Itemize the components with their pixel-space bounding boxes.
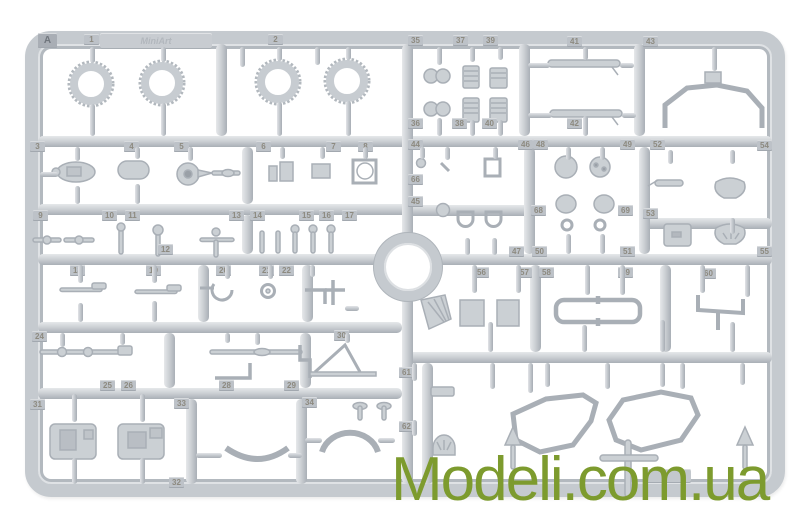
sprue-pin — [140, 458, 145, 484]
part-number-tag-11: 11 — [125, 210, 140, 221]
part-number-tag-29: 29 — [284, 380, 299, 391]
part-number-tag-36: 36 — [408, 118, 423, 129]
part-number-tag-1: 1 — [84, 34, 99, 45]
sprue-stub — [196, 453, 222, 458]
sprue-pin — [420, 147, 425, 159]
part-number-tag-10: 10 — [102, 210, 117, 221]
part-number-tag-42: 42 — [567, 118, 582, 129]
sprue-pin — [255, 333, 260, 345]
sprue-pin — [545, 363, 550, 387]
sprue-pin — [345, 333, 350, 343]
part-number-tag-49: 49 — [620, 139, 635, 150]
part-number-tag-12: 12 — [158, 244, 173, 255]
sprue-pin — [600, 147, 605, 160]
sprue-stub — [288, 453, 302, 458]
sprue-pin — [320, 147, 325, 159]
part-number-tag-7: 7 — [326, 141, 341, 152]
sprue-pin — [528, 363, 533, 393]
sprue-pin — [152, 265, 157, 283]
part-number-tag-51: 51 — [620, 246, 635, 257]
sprue-pin — [268, 265, 273, 279]
sprue-stub — [620, 63, 634, 68]
part-number-tag-A: A — [38, 33, 57, 48]
sprue-pin — [660, 363, 665, 387]
part-number-tag-69: 69 — [618, 205, 633, 216]
sprue-stub — [528, 63, 550, 68]
sprue-pin — [437, 47, 442, 65]
sprue-stub — [345, 306, 359, 311]
sprue-pin — [280, 147, 285, 159]
sprue-pin — [712, 47, 717, 71]
sprue-pin — [60, 333, 65, 347]
sprue-pin — [346, 101, 351, 136]
part-number-tag-13: 13 — [229, 210, 244, 221]
sprue-pin — [668, 150, 673, 164]
part-number-tag-26: 26 — [121, 380, 136, 391]
sprue-pin — [490, 363, 495, 389]
part-number-tag-55: 55 — [757, 246, 772, 257]
part-number-tag-6: 6 — [256, 141, 271, 152]
sprue-stub — [305, 438, 322, 443]
sprue-pin — [310, 265, 315, 277]
sprue-pin — [465, 238, 470, 255]
part-number-tag-33: 33 — [174, 398, 189, 409]
sprue-pin — [161, 103, 166, 136]
sprue-stub — [622, 113, 636, 118]
sprue-pin — [161, 47, 166, 62]
part-number-tag-16: 16 — [319, 210, 334, 221]
sprue-pin — [600, 234, 605, 254]
sprue-pin — [363, 147, 368, 159]
sprue-pin — [605, 363, 610, 389]
sprue-pin — [412, 420, 417, 436]
part-number-tag-24: 24 — [32, 331, 47, 342]
sprue-pin — [315, 47, 320, 65]
sprue-pin — [470, 47, 475, 62]
sprue-pin — [470, 120, 475, 136]
sprue-pin — [472, 265, 477, 293]
sprue-pin — [745, 265, 750, 297]
part-number-tag-50: 50 — [532, 246, 547, 257]
sprue-pin — [135, 147, 140, 159]
part-number-tag-9: 9 — [33, 210, 48, 221]
sprue-pin — [493, 147, 498, 159]
sprue-pin — [225, 265, 230, 279]
part-number-tag-22: 22 — [279, 265, 294, 276]
sprue-pin — [78, 303, 83, 322]
part-number-tag-31: 31 — [30, 399, 45, 410]
sprue-pin — [492, 238, 497, 255]
sprue-pin — [277, 47, 282, 61]
part-number-tag-34: 34 — [302, 397, 317, 408]
sprue-pin — [620, 265, 625, 295]
part-number-tag-32: 32 — [169, 477, 184, 488]
part-number-tag-53: 53 — [643, 208, 658, 219]
sprue-pin — [120, 333, 125, 345]
part-number-tag-15: 15 — [299, 210, 314, 221]
sprue-stub — [40, 172, 58, 177]
sprue-pin — [412, 363, 417, 381]
sprue-pin — [72, 394, 77, 422]
part-number-tag-54: 54 — [757, 140, 772, 151]
part-number-tag-48: 48 — [533, 139, 548, 150]
sprue-pin — [566, 147, 571, 160]
part-number-tag-5: 5 — [174, 141, 189, 152]
part-number-tag-43: 43 — [643, 36, 658, 47]
sprue-stub — [528, 113, 552, 118]
part-number-tag-47: 47 — [509, 246, 524, 257]
sprue-pin — [488, 322, 493, 352]
part-number-tag-68: 68 — [531, 205, 546, 216]
watermark-text: Modeli.com.ua — [391, 444, 768, 515]
sprue-stub — [378, 438, 395, 443]
sprue-pin — [730, 218, 735, 234]
sprue-pin — [135, 184, 140, 204]
part-number-tag-37: 37 — [453, 35, 468, 46]
sprue-pin — [730, 322, 735, 352]
sprue-pin — [445, 147, 450, 160]
sprue-pin — [660, 320, 665, 352]
sprue-pin — [498, 120, 503, 136]
sprue-pin — [498, 47, 503, 60]
part-number-tag-40: 40 — [482, 118, 497, 129]
sprue-pin — [437, 118, 442, 136]
part-number-tag-35: 35 — [408, 35, 423, 46]
part-number-tag-46: 46 — [518, 139, 533, 150]
sprue-pin — [582, 325, 587, 352]
sprue-pin — [140, 394, 145, 422]
sprue-pin — [740, 363, 745, 385]
part-number-tag-17: 17 — [342, 210, 357, 221]
sprue-pin — [680, 363, 685, 389]
sprue-pin — [346, 47, 351, 60]
product-photo-model-sprue: MiniArt — [0, 0, 800, 523]
part-number-tag-39: 39 — [483, 35, 498, 46]
sprue-pin — [188, 147, 193, 161]
sprue-pin — [585, 265, 590, 295]
part-number-tag-52: 52 — [650, 139, 665, 150]
part-number-tag-41: 41 — [567, 36, 582, 47]
sprue-pin — [90, 47, 95, 63]
part-number-tag-3: 3 — [30, 141, 45, 152]
sprue-pin — [90, 104, 95, 136]
part-number-tag-14: 14 — [250, 210, 265, 221]
part-number-tag-66: 66 — [408, 174, 423, 185]
part-number-tag-38: 38 — [452, 118, 467, 129]
sprue-pin — [75, 186, 80, 204]
part-number-tag-2: 2 — [268, 34, 283, 45]
sprue-pin — [516, 265, 521, 293]
sprue-pin — [225, 333, 230, 343]
sprue-pin — [240, 47, 245, 67]
part-number-tag-58: 58 — [539, 267, 554, 278]
sprue-pin — [75, 147, 80, 161]
sprue-pin — [277, 102, 282, 136]
sprue-pin — [72, 458, 77, 484]
sprue-pin — [152, 301, 157, 322]
sprue-pin — [583, 116, 588, 136]
part-number-tag-25: 25 — [100, 380, 115, 391]
sprue-pin — [730, 150, 735, 164]
part-number-tag-28: 28 — [219, 380, 234, 391]
sprue-pin — [566, 234, 571, 254]
sprue-pin — [700, 265, 705, 293]
part-number-tag-45: 45 — [408, 196, 423, 207]
sprue-pin — [583, 47, 588, 60]
sprue-pin — [78, 265, 83, 283]
